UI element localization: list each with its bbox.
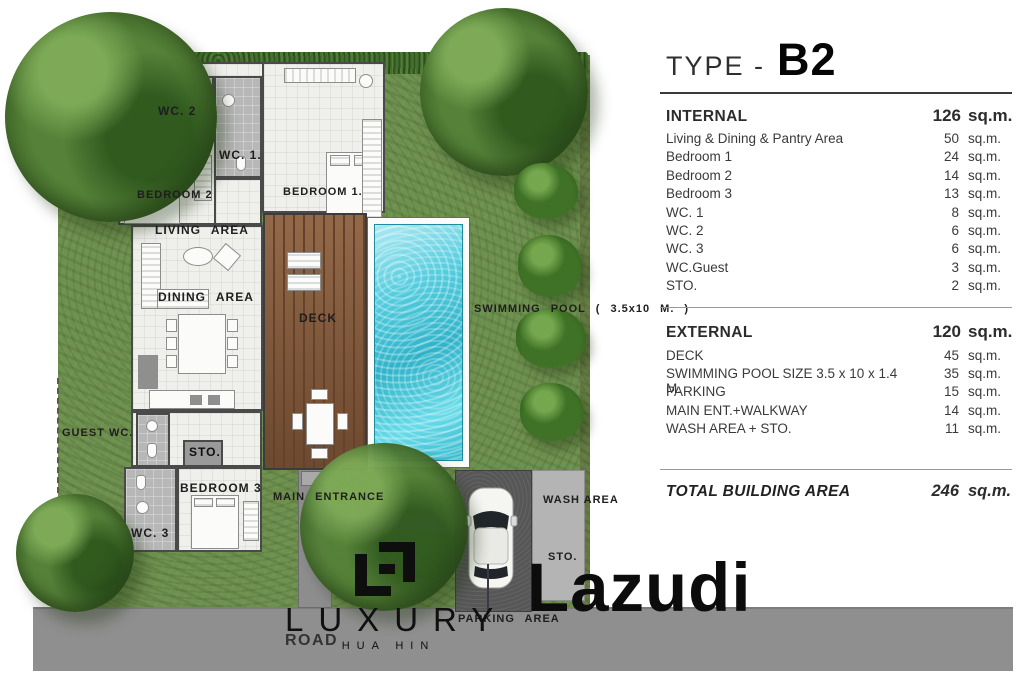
armchair	[213, 243, 241, 271]
spec-row: MAIN ENT.+WALKWAY14sq.m.	[660, 403, 1012, 421]
row-label: Bedroom 2	[666, 168, 732, 183]
row-value: 6	[912, 241, 968, 256]
row-label: Bedroom 1	[666, 149, 732, 164]
divider	[660, 469, 1012, 470]
lazudi-watermark: Lazudi	[527, 548, 752, 627]
row-value: 14	[912, 403, 968, 418]
sink-icon	[146, 420, 158, 432]
label-swimming-pool: SWIMMING POOL ( 3.5x10 M. )	[474, 303, 689, 315]
row-value: 13	[912, 186, 968, 201]
row-label: WC. 1	[666, 205, 704, 220]
tree	[420, 8, 588, 176]
label-wc2: WC. 2	[158, 104, 196, 118]
spec-row: Bedroom 124sq.m.	[660, 149, 1012, 167]
fridge	[138, 355, 158, 389]
row-label: Bedroom 3	[666, 186, 732, 201]
deck	[263, 213, 367, 470]
pillow	[216, 498, 235, 507]
row-unit: sq.m.	[968, 403, 1012, 418]
room-living-dining	[131, 225, 263, 411]
logo-location-text: HUA HIN	[270, 640, 500, 652]
row-unit: sq.m.	[968, 278, 1012, 293]
spec-row: WASH AREA + STO.11sq.m.	[660, 421, 1012, 439]
row-unit: sq.m.	[968, 421, 1012, 436]
label-sto: STO.	[189, 445, 221, 459]
label-wash-area: WASH AREA	[543, 494, 619, 506]
pillow	[194, 498, 213, 507]
external-section-header: EXTERNAL 120 sq.m.	[660, 322, 1012, 342]
spec-row: Bedroom 214sq.m.	[660, 168, 1012, 186]
total-value: 246	[912, 482, 968, 501]
label-main-entrance: MAIN ENTRANCE	[273, 491, 384, 503]
divider	[660, 92, 1012, 94]
row-value: 45	[912, 348, 968, 363]
chair	[166, 337, 177, 350]
tree	[16, 494, 134, 612]
row-unit: sq.m.	[968, 223, 1012, 238]
internal-heading: INTERNAL	[666, 108, 748, 126]
row-label: WC.Guest	[666, 260, 728, 275]
spec-row: SWIMMING POOL SIZE 3.5 x 10 x 1.4 M.35sq…	[660, 366, 1012, 384]
row-value: 3	[912, 260, 968, 275]
external-total-unit: sq.m.	[968, 322, 1012, 342]
total-label: TOTAL BUILDING AREA	[666, 483, 850, 501]
external-heading: EXTERNAL	[666, 324, 753, 342]
plan-title-prefix: TYPE -	[666, 51, 765, 82]
internal-section-header: INTERNAL 126 sq.m.	[660, 106, 1012, 126]
total-building-area-row: TOTAL BUILDING AREA 246 sq.m.	[660, 482, 1012, 501]
row-label: WC. 2	[666, 223, 704, 238]
sink-icon	[190, 395, 202, 405]
row-label: PARKING	[666, 384, 726, 399]
toilet-icon	[136, 475, 146, 490]
row-unit: sq.m.	[968, 348, 1012, 363]
chair	[337, 413, 348, 430]
row-label: WC. 3	[666, 241, 704, 256]
row-unit: sq.m.	[968, 205, 1012, 220]
label-bedroom2: BEDROOM 2	[137, 189, 213, 201]
coffee-table	[183, 247, 213, 266]
row-value: 2	[912, 278, 968, 293]
internal-total: 126 sq.m.	[912, 106, 1012, 126]
row-unit: sq.m.	[968, 131, 1012, 146]
external-total: 120 sq.m.	[912, 322, 1012, 342]
bed	[191, 495, 239, 549]
row-unit: sq.m.	[968, 260, 1012, 275]
row-label: Living & Dining & Pantry Area	[666, 131, 843, 146]
swimming-pool	[367, 217, 470, 468]
row-value: 50	[912, 131, 968, 146]
chair	[227, 355, 238, 368]
bush	[514, 163, 578, 219]
pool-water	[374, 224, 463, 461]
room-wc-1	[214, 76, 262, 178]
pillow	[330, 155, 350, 166]
chair	[311, 448, 328, 459]
internal-total-unit: sq.m.	[968, 106, 1012, 126]
label-wc1: WC. 1.	[219, 148, 262, 162]
row-value: 35	[912, 366, 968, 381]
chair	[227, 319, 238, 332]
sink-icon	[136, 501, 149, 514]
label-dining-area: DINING AREA	[158, 290, 254, 304]
chair	[227, 337, 238, 350]
spec-row: Living & Dining & Pantry Area50sq.m.	[660, 131, 1012, 149]
wardrobe	[362, 119, 382, 219]
luxury-hua-hin-logo: LUXURY HUA HIN	[270, 538, 500, 652]
spec-row: STO.2sq.m.	[660, 278, 1012, 296]
wardrobe	[243, 501, 259, 541]
kitchen-counter	[149, 390, 235, 409]
room-guest-wc	[136, 413, 170, 467]
row-value: 8	[912, 205, 968, 220]
chair	[292, 413, 303, 430]
chair	[166, 355, 177, 368]
spec-row: WC. 18sq.m.	[660, 205, 1012, 223]
luxury-logo-monogram-icon	[343, 538, 427, 600]
spec-row: WC.Guest3sq.m.	[660, 260, 1012, 278]
row-unit: sq.m.	[968, 366, 1012, 381]
room-bedroom-3	[177, 467, 262, 552]
closet	[284, 68, 356, 83]
hallway	[214, 178, 262, 225]
total-unit: sq.m.	[968, 482, 1012, 501]
row-unit: sq.m.	[968, 168, 1012, 183]
spec-panel: TYPE - B2 INTERNAL 126 sq.m. Living & Di…	[660, 34, 1012, 501]
row-label: DECK	[666, 348, 704, 363]
spec-row: WC. 26sq.m.	[660, 223, 1012, 241]
spec-row: DECK45sq.m.	[660, 348, 1012, 366]
external-total-value: 120	[912, 322, 968, 342]
plan-title: TYPE - B2	[660, 34, 1012, 86]
label-bedroom1: BEDROOM 1.	[283, 186, 363, 198]
hob-icon	[208, 395, 220, 405]
label-bedroom3: BEDROOM 3	[180, 481, 262, 495]
label-guest-wc: GUEST WC.	[62, 427, 133, 439]
chair	[311, 389, 328, 400]
bush	[520, 383, 584, 441]
internal-total-value: 126	[912, 106, 968, 126]
label-deck: DECK	[299, 311, 337, 325]
label-wc3: WC. 3	[131, 526, 169, 540]
row-label: MAIN ENT.+WALKWAY	[666, 403, 808, 418]
dining-table	[178, 314, 226, 374]
row-value: 11	[912, 421, 968, 436]
divider	[660, 307, 1012, 308]
row-value: 6	[912, 223, 968, 238]
sink-icon	[359, 74, 373, 88]
row-unit: sq.m.	[968, 186, 1012, 201]
spec-row: WC. 36sq.m.	[660, 241, 1012, 259]
row-value: 24	[912, 149, 968, 164]
row-unit: sq.m.	[968, 149, 1012, 164]
chair	[166, 319, 177, 332]
plan-title-type: B2	[777, 34, 837, 86]
total-value-group: 246 sq.m.	[912, 482, 1012, 501]
logo-brand-text: LUXURY	[270, 603, 500, 636]
row-label: WASH AREA + STO.	[666, 421, 792, 436]
bush	[518, 235, 582, 297]
bush	[516, 308, 586, 368]
outdoor-table	[306, 403, 334, 445]
row-unit: sq.m.	[968, 241, 1012, 256]
sink-icon	[222, 94, 235, 107]
label-living-area: LIVING AREA	[155, 223, 249, 237]
spec-row: Bedroom 313sq.m.	[660, 186, 1012, 204]
row-label: STO.	[666, 278, 697, 293]
sun-lounger	[287, 274, 321, 291]
row-value: 15	[912, 384, 968, 399]
toilet-icon	[147, 443, 157, 458]
row-unit: sq.m.	[968, 384, 1012, 399]
floorplan-page: WC. 2 WC. 1. BEDROOM 2 BEDROOM 1. LIVING…	[0, 0, 1024, 673]
sun-lounger	[287, 252, 321, 269]
row-value: 14	[912, 168, 968, 183]
